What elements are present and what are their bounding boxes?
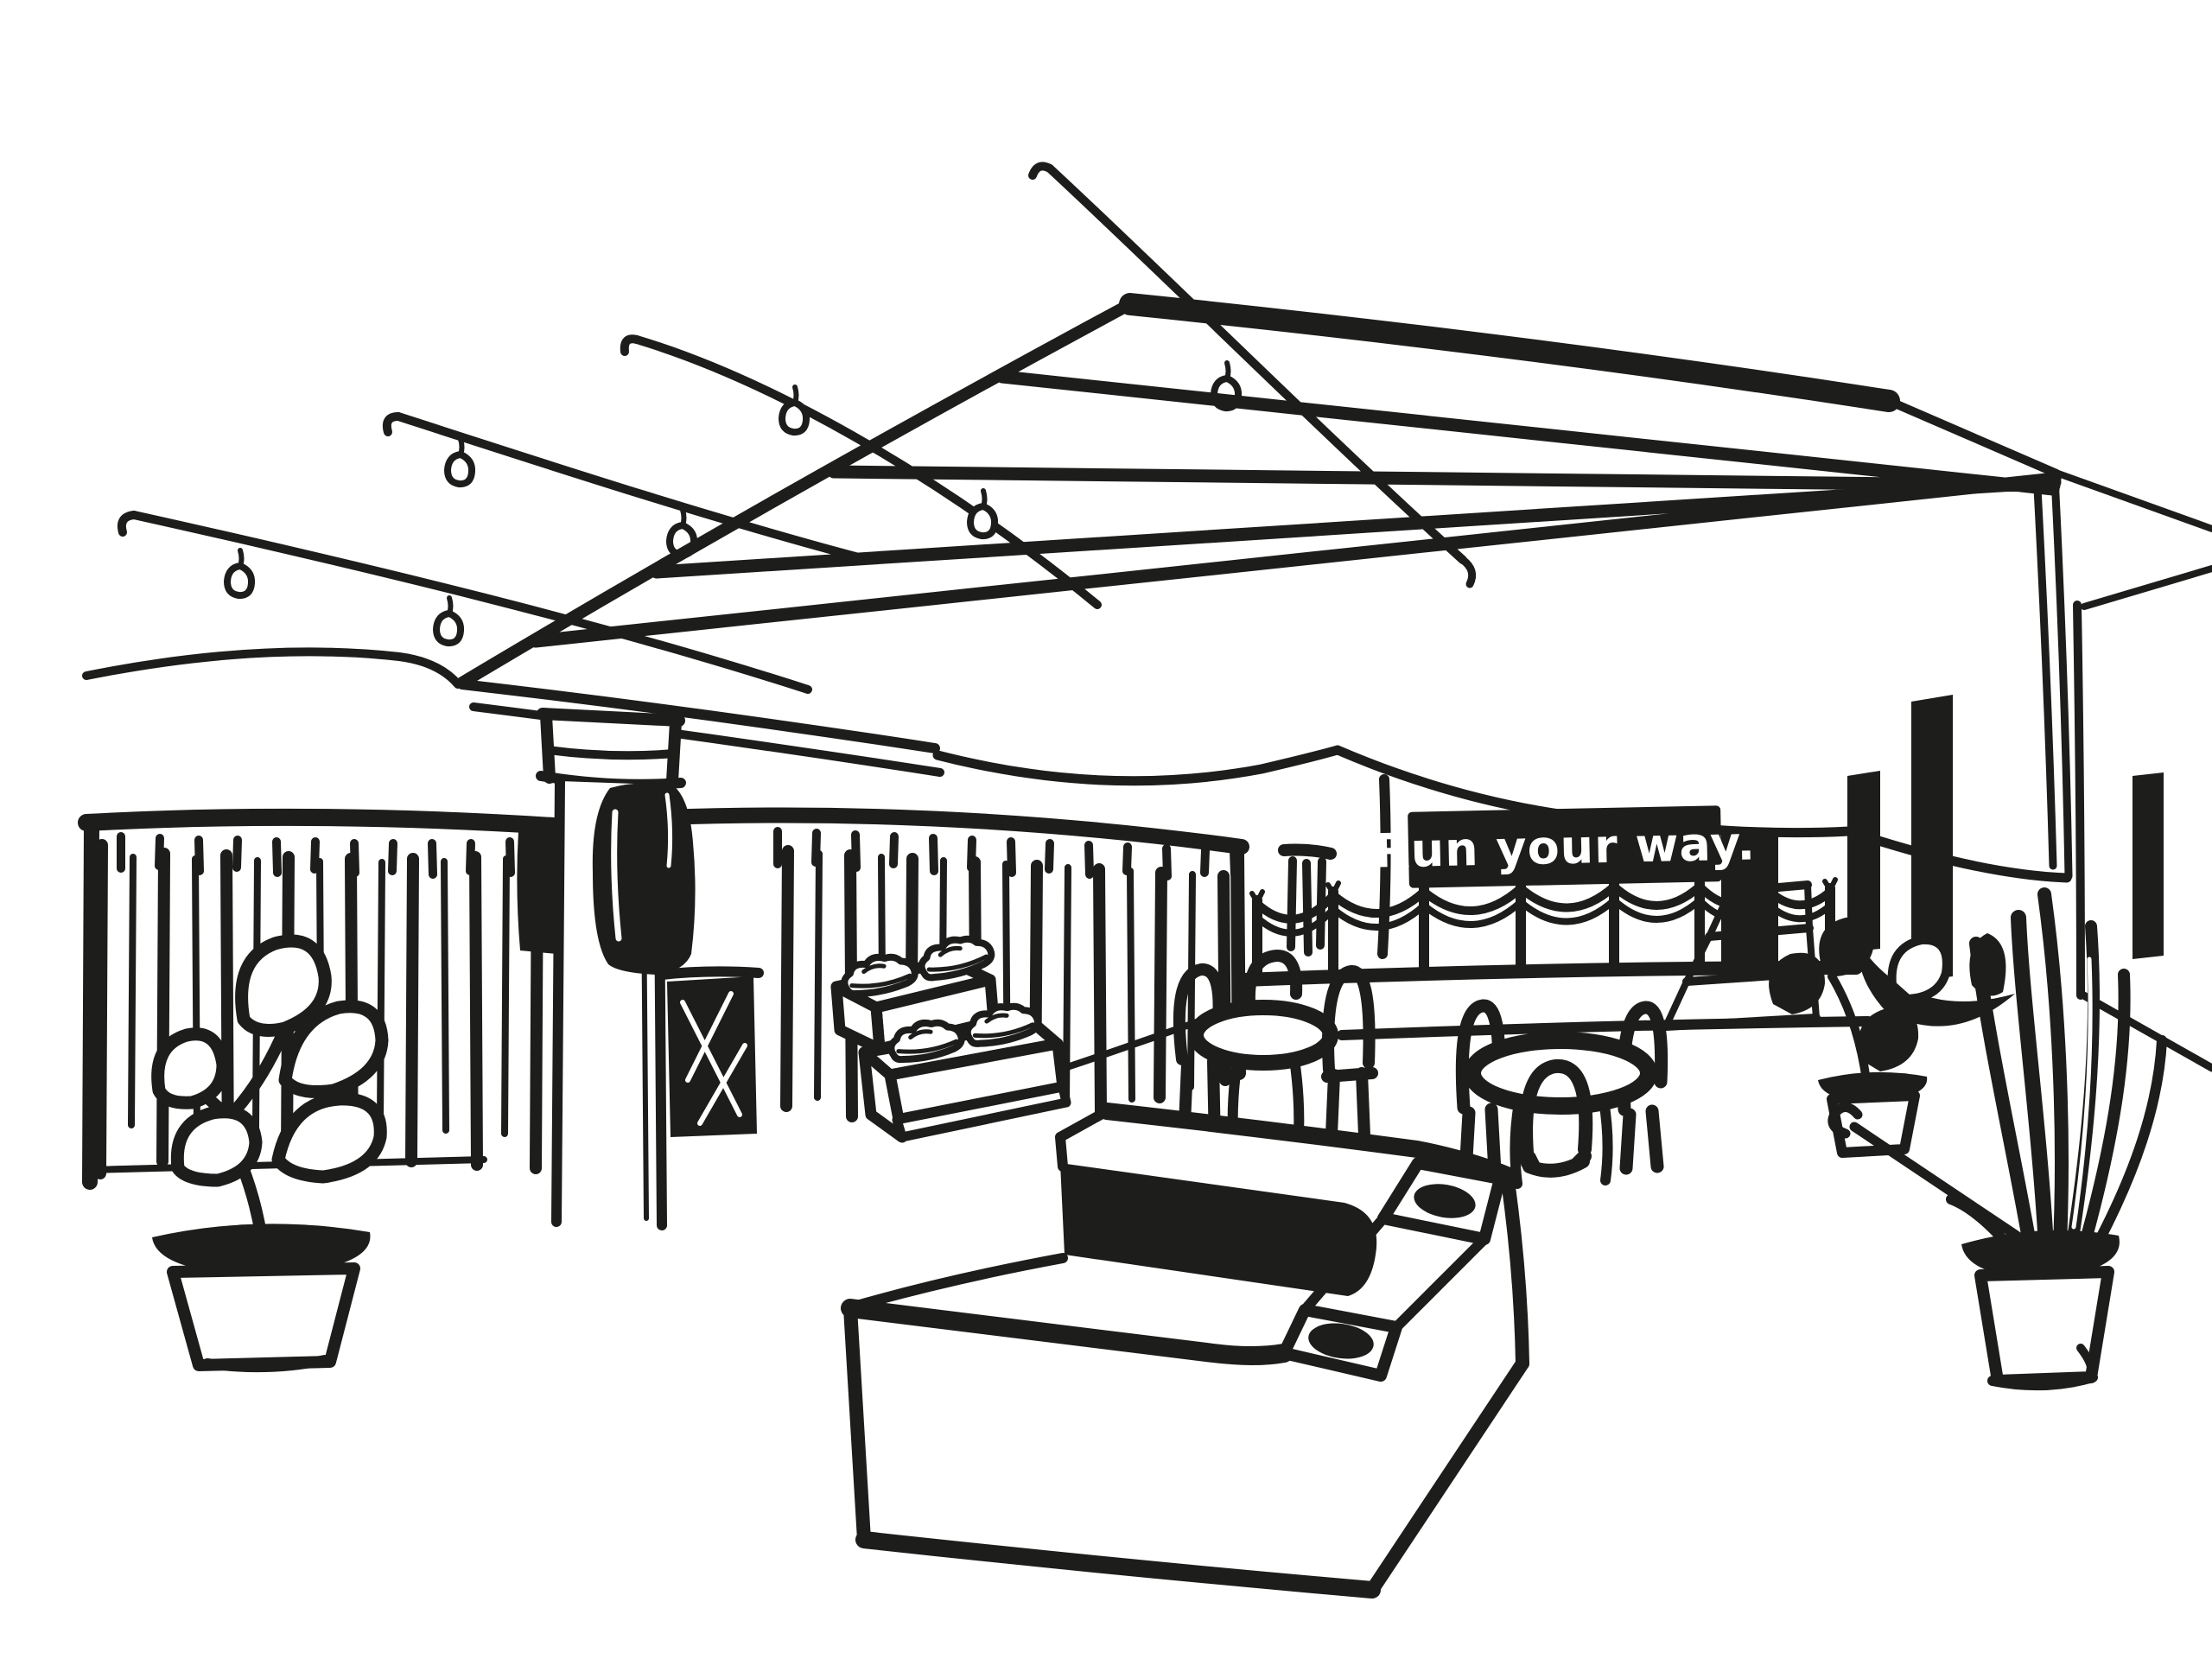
wall-corner-line [2077, 605, 2081, 995]
wall-floor-edge [2081, 994, 2212, 1068]
canopy-right-edge [2037, 477, 2069, 876]
store-sketch: Run your way. [0, 0, 2212, 1659]
pendant-light-icon [448, 439, 472, 484]
sign-text: Run your way. [1373, 816, 1756, 878]
ceiling [86, 652, 458, 684]
cafe-table-2 [1462, 1006, 1661, 1184]
pendant-light-icon [782, 387, 806, 432]
curtain-rail-left [86, 817, 553, 826]
curtain-panel-narrow [1284, 850, 1331, 855]
pendant-light-icon [436, 598, 461, 643]
chair [1327, 971, 1372, 1156]
rubber-leaf [1892, 940, 1947, 999]
curtain-rail-center [664, 816, 1242, 847]
pendant-light-icon [970, 491, 995, 536]
hanging-jacket [593, 783, 696, 975]
ficus-pot [173, 1268, 354, 1365]
ceiling-edge-left [86, 652, 458, 684]
doorway-top-bar [662, 971, 759, 975]
curtain-left-border [90, 828, 92, 1182]
display-counter [850, 1111, 1522, 1590]
roof-exterior-lines [2058, 474, 2212, 607]
canopy-ridge-end [1889, 401, 2056, 474]
canopy-top-edge [462, 304, 1130, 683]
doorway-dark-4 [2133, 772, 2164, 959]
fitting-room-doorway [662, 971, 759, 1137]
ficus-leaf [158, 1034, 223, 1103]
promo-sign: Run your way. [1373, 804, 1757, 888]
ficus-leaf [278, 1099, 380, 1177]
pendant-light-icon [227, 550, 251, 595]
plant-snake [1833, 894, 2162, 1385]
plant-ficus [152, 941, 382, 1367]
railing-ledge [1342, 1021, 1868, 1035]
ficus-leaf [177, 1112, 256, 1180]
sketch-page: Run your way. [0, 0, 2212, 1659]
floor-cable [1833, 1107, 2017, 1236]
